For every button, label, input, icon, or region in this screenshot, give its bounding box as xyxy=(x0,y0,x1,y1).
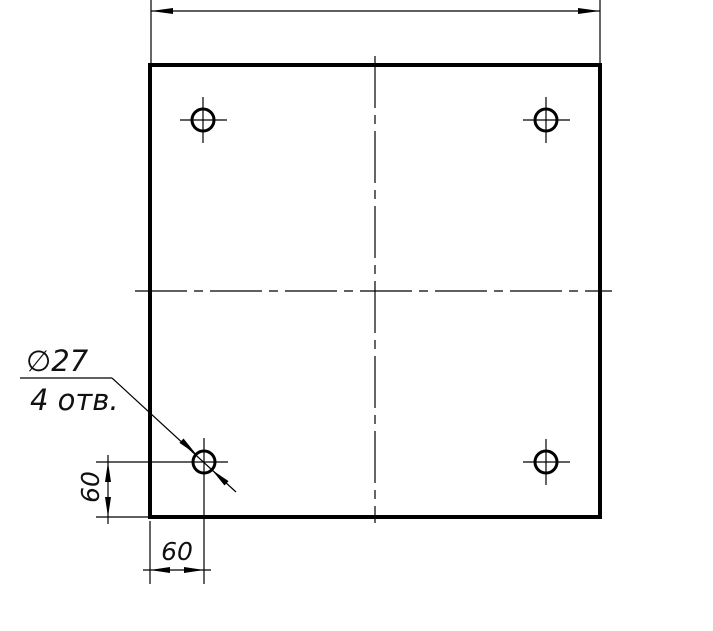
engineering-drawing-canvas: ∅27 4 отв. 60 60 xyxy=(0,0,713,631)
top-dimension xyxy=(151,0,600,63)
dimension-arrow-left xyxy=(151,8,173,14)
dimension-arrow-right xyxy=(184,567,204,573)
dimension-arrow-right xyxy=(578,8,600,14)
dimension-arrow-left xyxy=(150,567,170,573)
dimension-arrow-down xyxy=(105,497,111,517)
hole-bottom-right xyxy=(523,439,570,485)
drawing-sheet: ∅27 4 отв. 60 60 xyxy=(0,0,713,631)
hole-diameter-label: ∅27 xyxy=(26,344,89,378)
bottom-dimension-value: 60 xyxy=(161,537,193,566)
left-dimension-60: 60 xyxy=(76,455,150,524)
left-dimension-value: 60 xyxy=(76,471,105,503)
dimension-arrow-up xyxy=(105,462,111,482)
bottom-dimension-60: 60 xyxy=(143,521,211,584)
hole-top-right xyxy=(523,97,570,143)
hole-top-left xyxy=(180,97,227,143)
hole-count-label: 4 отв. xyxy=(30,383,119,417)
